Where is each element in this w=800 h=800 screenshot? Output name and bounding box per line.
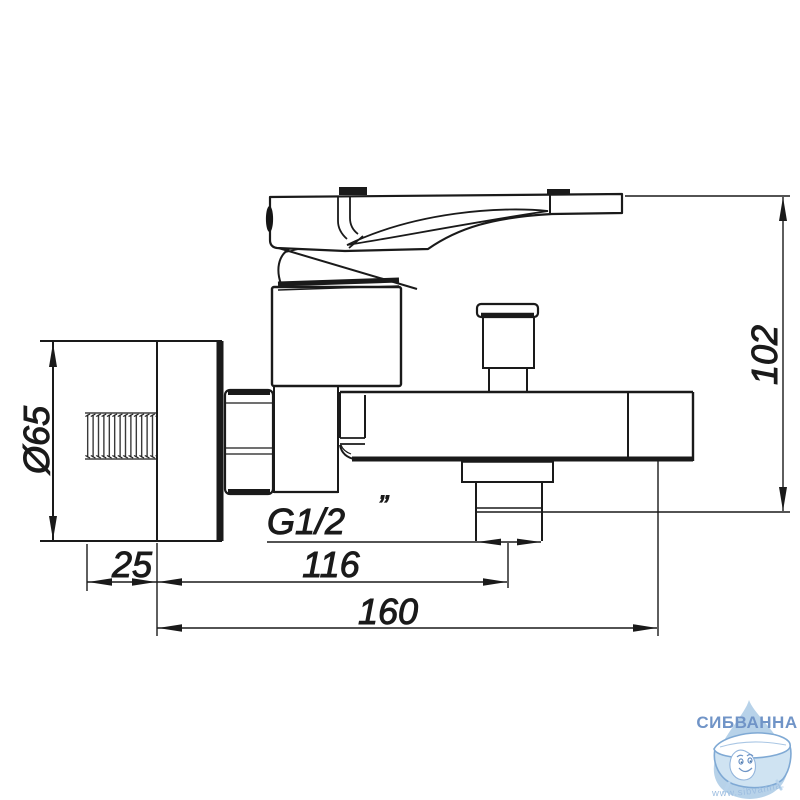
watermark-url: www.sibvanna.ru: [0, 0, 786, 799]
wall-flange: [40, 341, 222, 541]
body-column: [274, 386, 338, 493]
diverter-knob: [477, 304, 538, 392]
dim-wall-to-outlet: 116: [302, 544, 360, 585]
faucet-outline: [40, 191, 693, 541]
dim-body-height: 102: [744, 325, 785, 385]
drawing-canvas: Ø65 102 25 116 160 G1/2 ” СИБВАННА: [0, 0, 800, 800]
bottom-outlet: [462, 460, 553, 541]
cartridge-housing: [272, 238, 417, 386]
dim-total-length: 160: [358, 591, 418, 632]
droplet-face: [730, 750, 756, 780]
technical-drawing: Ø65 102 25 116 160 G1/2 ” СИБВАННА: [0, 0, 800, 800]
dim-flange-diameter: Ø65: [16, 405, 57, 475]
dim-flange-depth: 25: [111, 544, 153, 585]
lever-handle: [266, 191, 622, 251]
thread-hatch: [85, 413, 157, 459]
watermark-logo: СИБВАННА www.sibvanna.ru: [0, 0, 798, 799]
dim-thread-size: G1/2: [267, 501, 345, 542]
connection-nut: [225, 390, 273, 494]
watermark-brand: СИБВАННА: [696, 713, 797, 732]
dim-thread-inch-mark: ”: [378, 490, 390, 523]
spout-body: [340, 392, 693, 461]
svg-text:www.sibvanna.ru: www.sibvanna.ru: [0, 0, 786, 799]
dimension-lines: [87, 196, 790, 636]
dimension-arrows: [49, 197, 787, 632]
lever-end-cap: [266, 206, 273, 232]
